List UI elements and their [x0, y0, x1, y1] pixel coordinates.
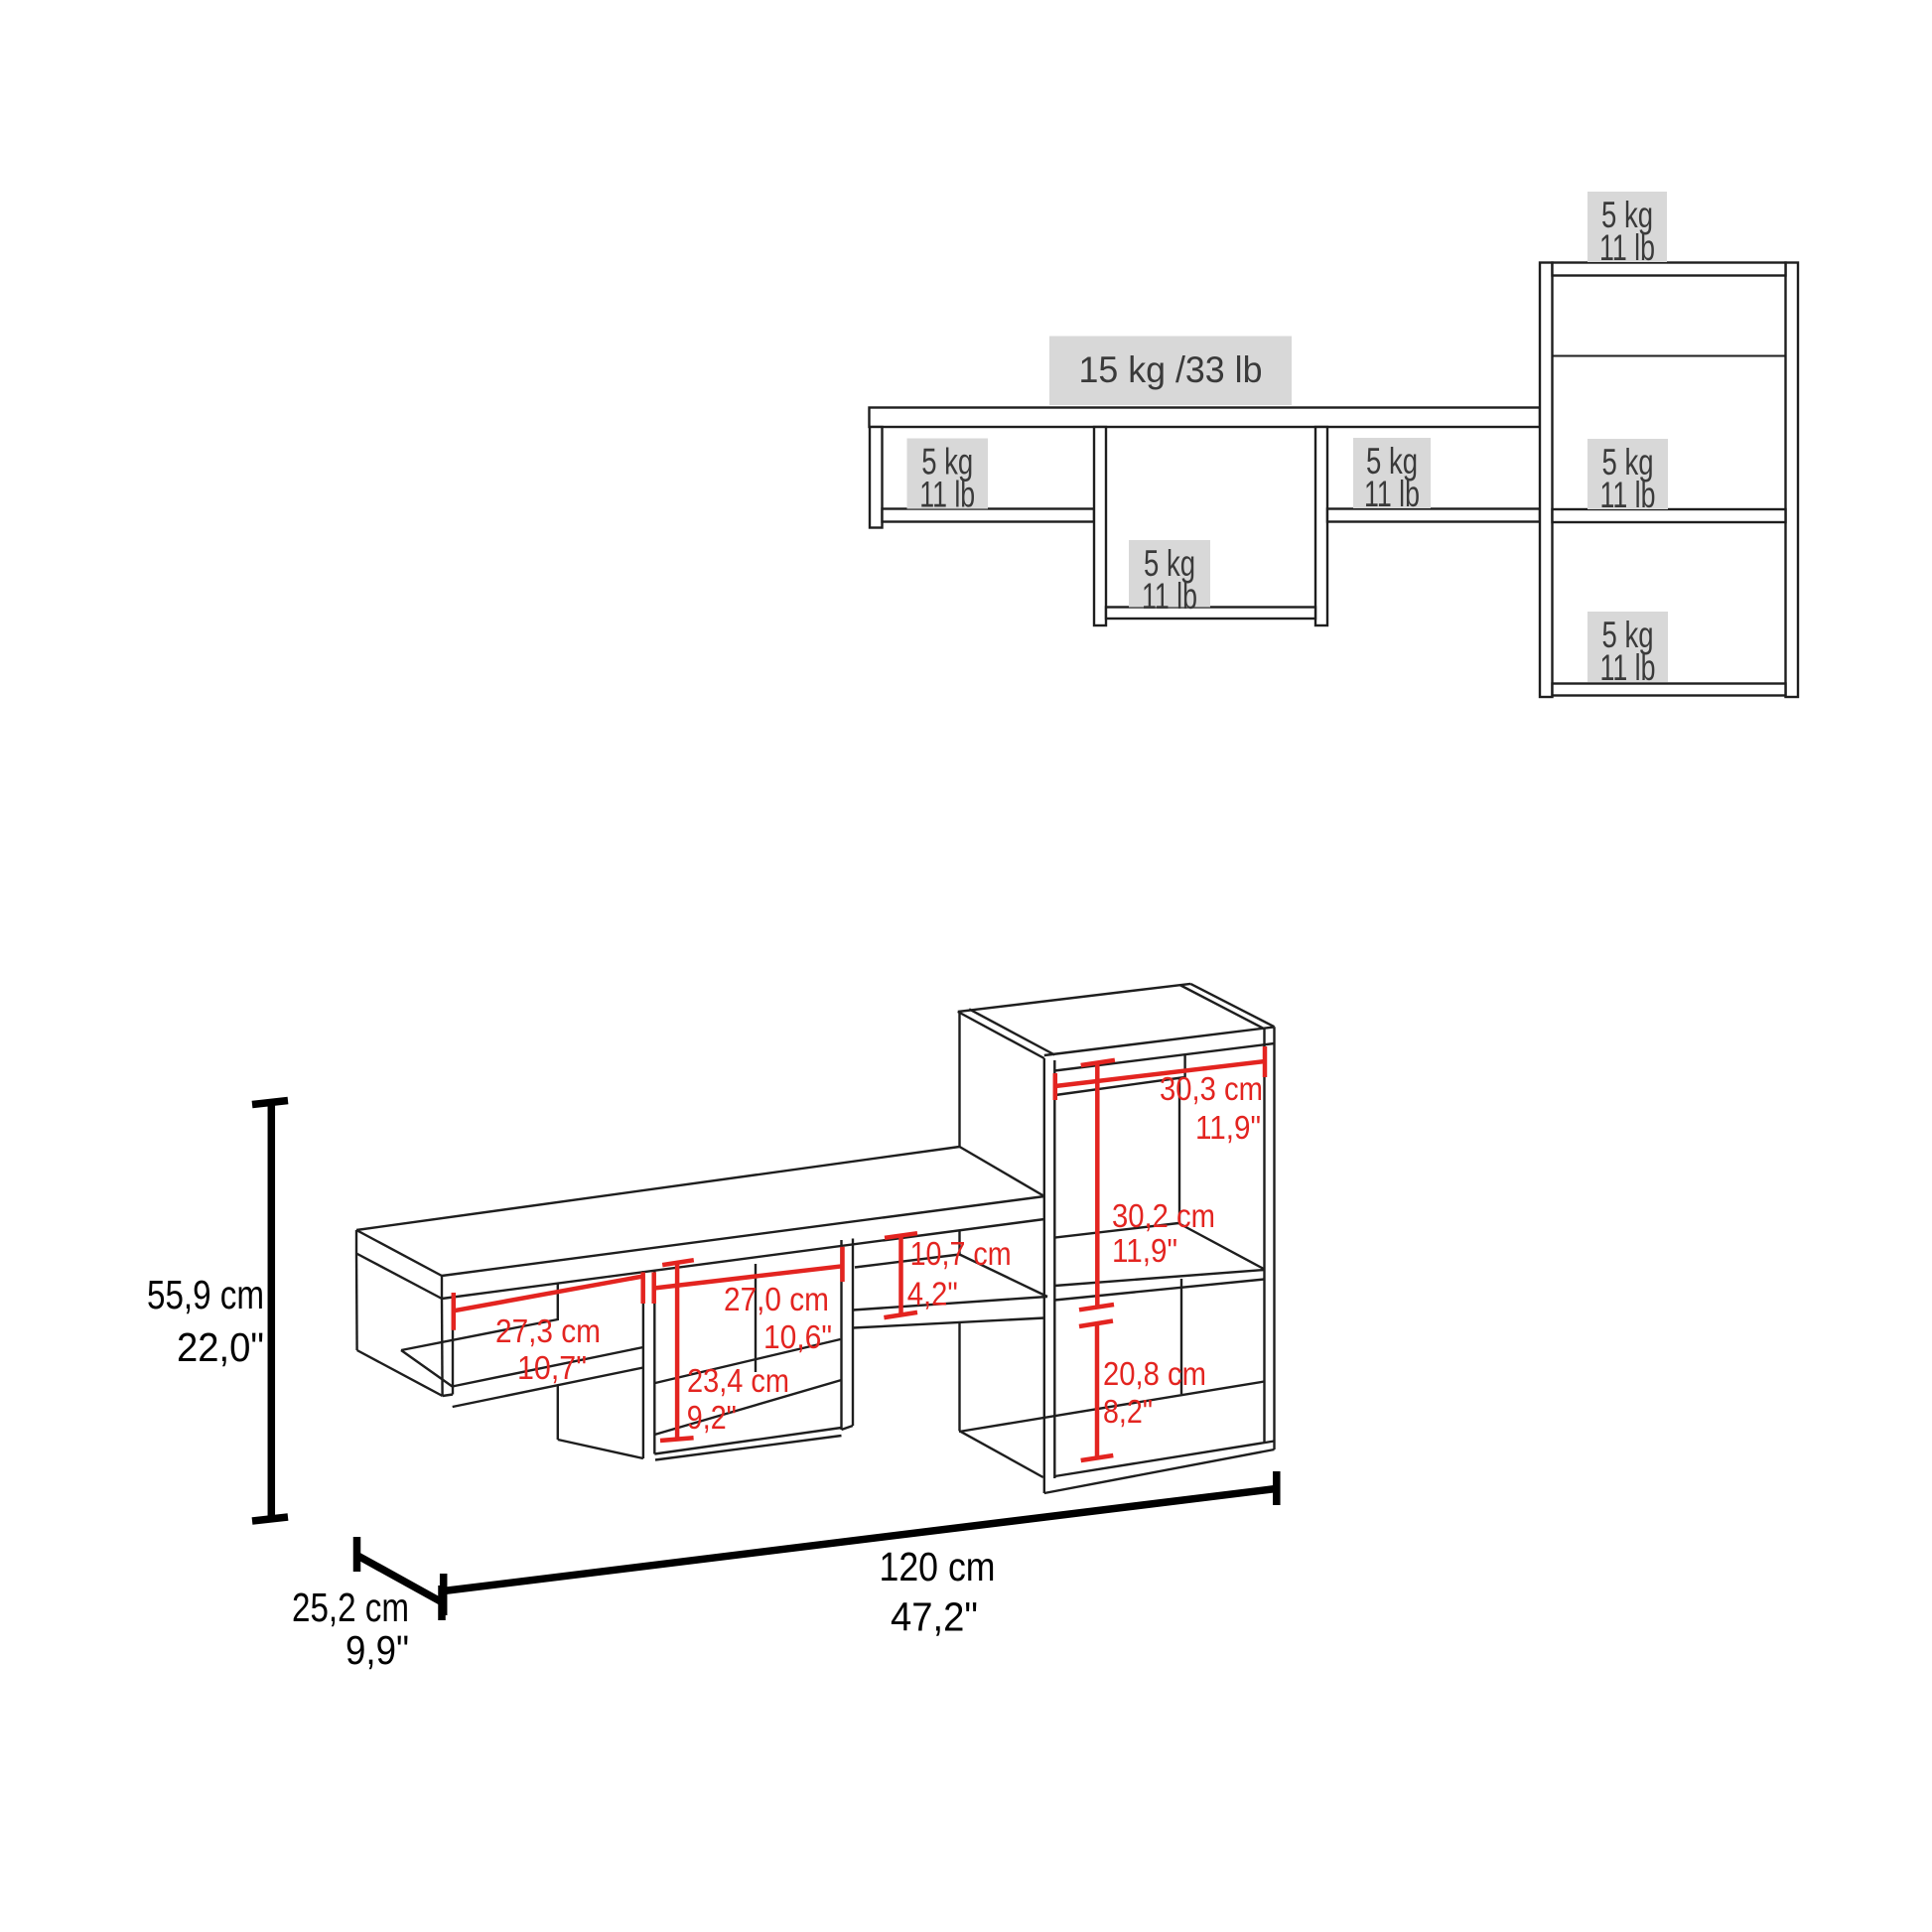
svg-text:11 lb: 11 lb — [1600, 475, 1656, 515]
svg-text:9,2": 9,2" — [687, 1399, 737, 1436]
svg-text:9,9": 9,9" — [345, 1627, 409, 1673]
svg-text:11 lb: 11 lb — [919, 475, 975, 515]
svg-text:8,2": 8,2" — [1103, 1393, 1153, 1430]
svg-text:22,0": 22,0" — [177, 1324, 264, 1370]
svg-text:11 lb: 11 lb — [1142, 576, 1197, 617]
svg-text:30,2 cm: 30,2 cm — [1112, 1197, 1215, 1234]
svg-text:10,7 cm: 10,7 cm — [910, 1235, 1012, 1272]
svg-text:11 lb: 11 lb — [1599, 227, 1655, 268]
svg-text:11 lb: 11 lb — [1364, 474, 1420, 514]
svg-text:30,3 cm: 30,3 cm — [1160, 1070, 1263, 1107]
svg-text:25,2 cm: 25,2 cm — [292, 1585, 409, 1630]
svg-text:15 kg /33 lb: 15 kg /33 lb — [1079, 349, 1263, 390]
svg-text:27,3 cm: 27,3 cm — [495, 1312, 601, 1349]
svg-text:20,8 cm: 20,8 cm — [1103, 1355, 1206, 1392]
svg-text:10,7": 10,7" — [517, 1349, 587, 1386]
svg-text:23,4 cm: 23,4 cm — [687, 1362, 789, 1399]
svg-text:55,9 cm: 55,9 cm — [147, 1272, 264, 1317]
svg-text:10,6": 10,6" — [763, 1318, 832, 1355]
svg-text:27,0 cm: 27,0 cm — [724, 1281, 829, 1317]
svg-text:11,9": 11,9" — [1195, 1109, 1261, 1146]
svg-text:47,2": 47,2" — [891, 1594, 978, 1640]
svg-text:4,2": 4,2" — [907, 1276, 958, 1312]
svg-text:11 lb: 11 lb — [1600, 647, 1656, 688]
svg-text:11,9": 11,9" — [1112, 1232, 1177, 1269]
svg-text:120 cm: 120 cm — [880, 1544, 996, 1589]
